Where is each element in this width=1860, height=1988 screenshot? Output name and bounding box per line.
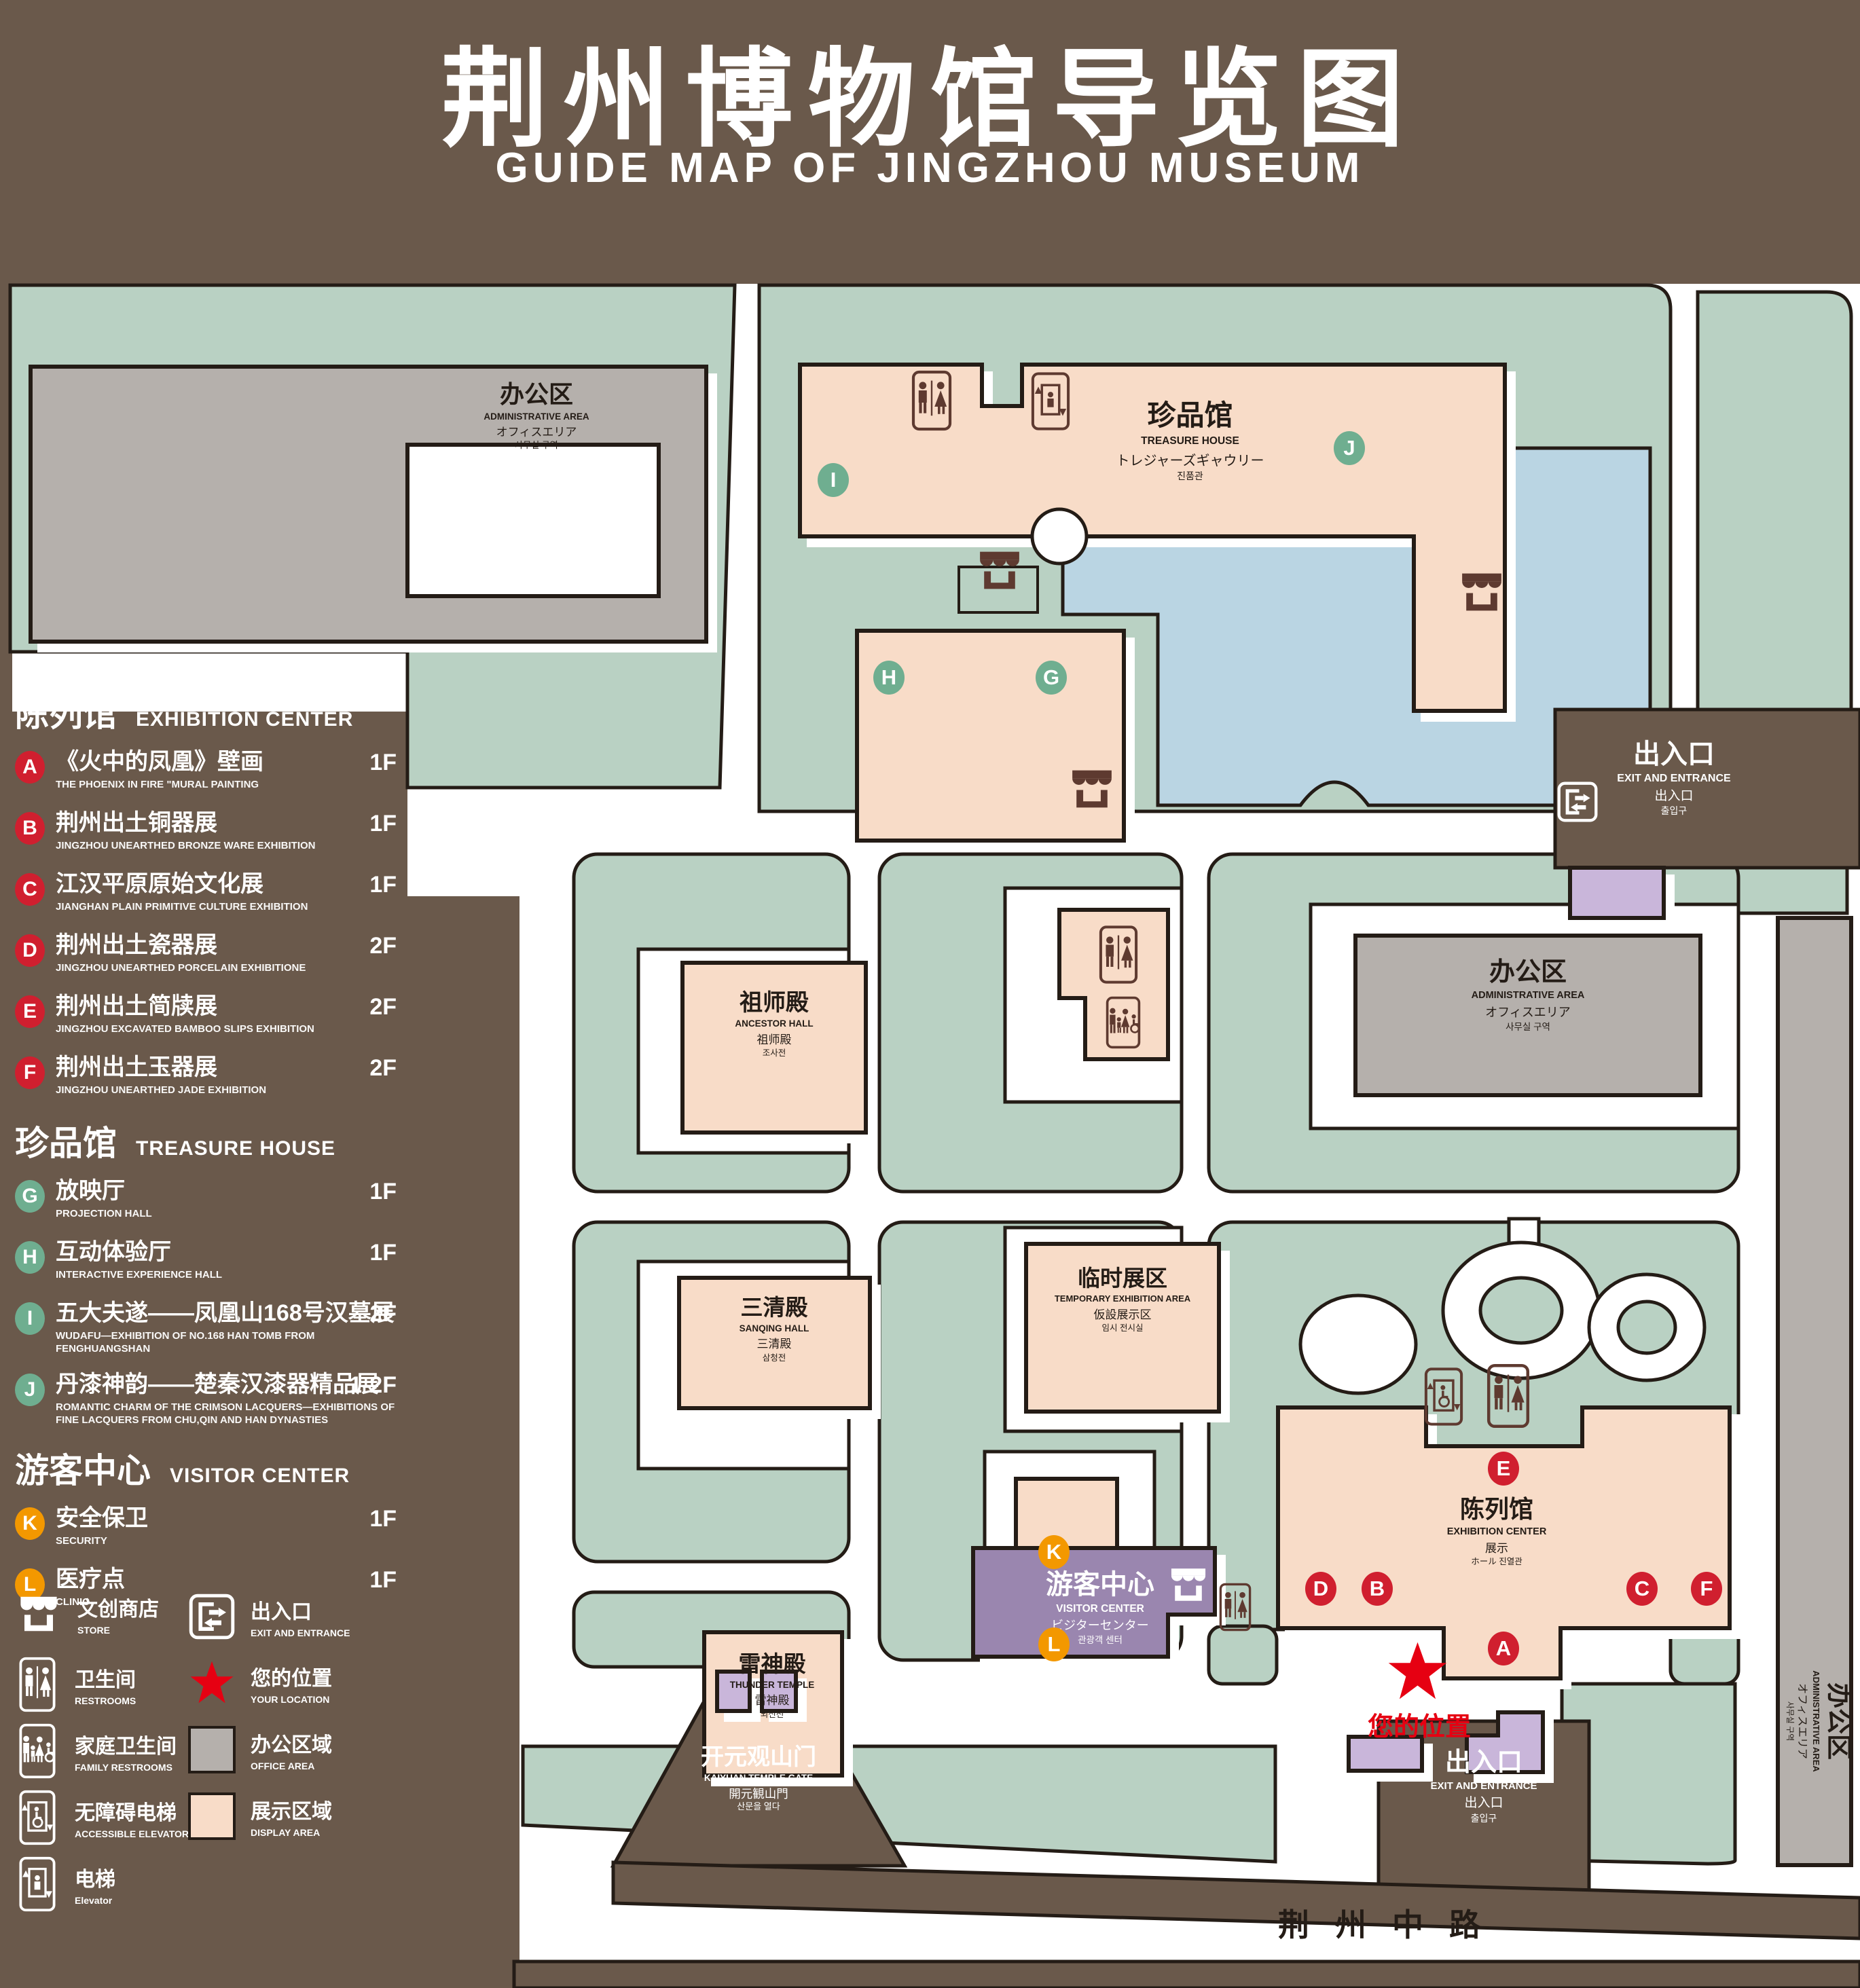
legend-item-floor: 1F [369, 872, 397, 898]
your-location-star-icon [1385, 1640, 1450, 1704]
legend-item-floor: 2F [369, 1055, 397, 1082]
legend-item-subtitle: SECURITY [56, 1535, 409, 1548]
legend-symbol-label: 展示区域DISPLAY AREA [251, 1794, 332, 1838]
section-title-en: TREASURE HOUSE [136, 1137, 335, 1160]
legend-marker: J [15, 1374, 45, 1406]
legend-item: H 互动体验厅 INTERACTIVE EXPERIENCE HALL 1F [15, 1240, 450, 1285]
elevator-icon [15, 1856, 60, 1912]
section-title-en: EXHIBITION CENTER [136, 708, 353, 731]
legend-item-subtitle: PROJECTION HALL [56, 1208, 409, 1221]
label-road: 荆州中路 [1188, 1905, 1596, 1946]
legend-marker: I [15, 1302, 45, 1335]
legend-item-floor: 1-2F [349, 1372, 397, 1399]
map-marker-L: L [1038, 1627, 1070, 1661]
restroom-icon [1487, 1362, 1530, 1430]
legend-symbol-row: 办公区域OFFICE AREA [188, 1726, 332, 1773]
legend-item: G 放映厅 PROJECTION HALL 1F [15, 1179, 450, 1223]
wc-icon [15, 1657, 60, 1712]
label-ancestor-hall: 祖师殿 ANCESTOR HALL 祖师殿 조사전 [672, 988, 876, 1059]
legend-item-floor: 2F [369, 933, 397, 959]
map-marker-G: G [1036, 661, 1067, 695]
map-marker-D: D [1305, 1572, 1336, 1606]
legend-marker: G [15, 1180, 45, 1213]
exit-icon [188, 1593, 236, 1640]
legend-section-heading: 游客中心VISITOR CENTER [15, 1443, 450, 1492]
legend-item-floor: 1F [369, 1179, 397, 1205]
legend-symbol-row: 出入口EXIT AND ENTRANCE [188, 1593, 350, 1640]
legend-panel: 陈列馆EXHIBITION CENTER A 《火中的凤凰》壁画 THE PHO… [15, 671, 450, 1628]
legend-symbol-label: 您的位置YOUR LOCATION [251, 1661, 332, 1705]
store-icon [15, 1590, 62, 1638]
map-marker-H: H [873, 661, 905, 695]
legend-item-subtitle: ROMANTIC CHARM OF THE CRIMSON LACQUERS—E… [56, 1401, 409, 1427]
label-kaiyuan-gate: 开元观山门 KAIYUAN TEMPLE GATE 開元観山門 산문을 열다 [657, 1742, 860, 1813]
map-marker-E: E [1488, 1452, 1519, 1486]
display-area-swatch [188, 1792, 236, 1840]
treasure-arc-court [1032, 509, 1087, 564]
legend-section-heading: 陈列馆EXHIBITION CENTER [15, 687, 450, 736]
legend-marker: D [15, 934, 45, 967]
guide-map-poster: 荆州博物馆导览图 GUIDE MAP OF JINGZHOU MUSEUM [0, 0, 1860, 1988]
legend-item-floor: 1F [369, 750, 397, 776]
label-visitor-center: 游客中心 VISITOR CENTER ビジターセンター 관광객 센터 [985, 1567, 1216, 1646]
map-marker-K: K [1038, 1535, 1070, 1569]
legend-item-subtitle: JINGZHOU UNEARTHED PORCELAIN EXHIBITIONE [56, 962, 409, 975]
restroom-icon [1219, 1582, 1252, 1632]
legend-symbol-label: 办公区域OFFICE AREA [251, 1728, 332, 1771]
label-your-location: 您的位置 [1331, 1711, 1508, 1744]
legend-item: B 荆州出土铜器展 JINGZHOU UNEARTHED BRONZE WARE… [15, 811, 450, 855]
label-exit-bottom: 出入口 EXIT AND ENTRANCE 出入口 출입구 [1382, 1746, 1586, 1824]
legend-symbol-label: 电梯Elevator [75, 1862, 115, 1906]
legend-item: K 安全保卫 SECURITY 1F [15, 1506, 450, 1551]
green-zone-topright [1698, 292, 1851, 710]
legend-symbol-label: 出入口EXIT AND ENTRANCE [251, 1595, 350, 1638]
legend-symbol-label: 卫生间RESTROOMS [75, 1663, 136, 1706]
legend-symbol-row: 家庭卫生间FAMILY RESTROOMS [15, 1723, 177, 1779]
legend-marker: H [15, 1241, 45, 1274]
label-temporary-exhibition: 临时展区 TEMPORARY EXHIBITION AREA 仮設展示区 임시 … [1015, 1264, 1230, 1333]
label-exit-top: 出入口 EXIT AND ENTRANCE 出入口 출입구 [1582, 737, 1766, 817]
legend-item-subtitle: WUDAFU—EXHIBITION OF NO.168 HAN TOMB FRO… [56, 1330, 409, 1356]
map-marker-J: J [1334, 431, 1365, 465]
map-marker-C: C [1626, 1572, 1658, 1606]
store-icon [1456, 566, 1508, 618]
legend-item-floor: 1F [369, 1240, 397, 1266]
elevator-icon [1031, 371, 1070, 432]
legend-symbol-row: 电梯Elevator [15, 1856, 115, 1912]
courtyard-admin-left [406, 443, 661, 599]
legend-item-subtitle: JINGZHOU UNEARTHED BRONZE WARE EXHIBITIO… [56, 840, 409, 853]
legend-symbol-label: 无障碍电梯ACCESSIBLE ELEVATOR [75, 1796, 189, 1839]
green-notch-left [1209, 1626, 1277, 1684]
legend-marker: E [15, 995, 45, 1028]
restroom-icon [1099, 925, 1138, 984]
legend-symbol-label: 文创商店STORE [77, 1592, 159, 1636]
map-marker-A: A [1488, 1632, 1519, 1665]
garden-island-right [1618, 1302, 1675, 1353]
legend-item-floor: 1F [369, 811, 397, 837]
legend-symbol-row: 卫生间RESTROOMS [15, 1657, 136, 1712]
legend-item: A 《火中的凤凰》壁画 THE PHOENIX IN FIRE "MURAL P… [15, 750, 450, 794]
legend-section-heading: 珍品馆TREASURE HOUSE [15, 1116, 450, 1165]
legend-item-subtitle: JIANGHAN PLAIN PRIMITIVE CULTURE EXHIBIT… [56, 901, 409, 914]
section-title-en: VISITOR CENTER [170, 1465, 350, 1488]
legend-symbol-row: 您的位置YOUR LOCATION [188, 1659, 332, 1707]
accessible-elevator-icon [15, 1790, 60, 1845]
accessible-elevator-icon [1424, 1365, 1463, 1429]
family-restroom-icon [1106, 995, 1141, 1050]
legend-symbol-label: 家庭卫生间FAMILY RESTROOMS [75, 1729, 177, 1773]
legend-item: C 江汉平原原始文化展 JIANGHAN PLAIN PRIMITIVE CUL… [15, 872, 450, 917]
legend-item-floor: 1F [369, 1567, 397, 1594]
legend-symbol-row: 文创商店STORE [15, 1590, 159, 1638]
section-title-cn: 陈列馆 [15, 687, 117, 736]
label-treasure-house: 珍品馆 TREASURE HOUSE トレジャーズギャウリー 진품관 [1066, 397, 1314, 482]
legend-marker: A [15, 751, 45, 784]
label-sanqing-hall: 三清殿 SANQING HALL 三清殿 삼청전 [672, 1293, 876, 1363]
legend-marker: F [15, 1056, 45, 1089]
legend-item-floor: 1F [369, 1506, 397, 1532]
garden-pond-left [1300, 1295, 1416, 1393]
road-strip-bottom [514, 1962, 1860, 1988]
legend-item-subtitle: THE PHOENIX IN FIRE "MURAL PAINTING [56, 779, 409, 792]
legend-item: I 五大夫遂——凤凰山168号汉墓展 WUDAFU—EXHIBITION OF … [15, 1301, 450, 1356]
restroom-icon [911, 369, 952, 432]
section-title-cn: 游客中心 [15, 1443, 151, 1492]
label-admin-strip: 办公区 ADMINISTRATIVE AREA オフィスエリア 사무실 구역 [1766, 1565, 1854, 1877]
family-icon [15, 1723, 60, 1779]
legend-marker: B [15, 812, 45, 845]
map-marker-B: B [1362, 1572, 1393, 1606]
label-exhibition-center: 陈列馆 EXHIBITION CENTER 展示 ホール 진열관 [1395, 1494, 1599, 1567]
label-thunder-temple: 雷神殿 THUNDER TEMPLE 雷神殿 뇌신전 [670, 1650, 874, 1720]
garden-island-center [1480, 1278, 1562, 1343]
legend-item: D 荆州出土瓷器展 JINGZHOU UNEARTHED PORCELAIN E… [15, 933, 450, 978]
legend-item-floor: 2F [369, 994, 397, 1020]
store-icon [1066, 763, 1118, 815]
legend-item-subtitle: JINGZHOU EXCAVATED BAMBOO SLIPS EXHIBITI… [56, 1023, 409, 1036]
legend-item: E 荆州出土简牍展 JINGZHOU EXCAVATED BAMBOO SLIP… [15, 994, 450, 1039]
legend-item-subtitle: INTERACTIVE EXPERIENCE HALL [56, 1269, 409, 1282]
location-star-icon [188, 1659, 236, 1707]
section-title-cn: 珍品馆 [15, 1116, 117, 1165]
legend-marker: C [15, 873, 45, 906]
label-admin-right: 办公区 ADMINISTRATIVE AREA オフィスエリア 사무실 구역 [1412, 956, 1643, 1033]
legend-symbol-row: 无障碍电梯ACCESSIBLE ELEVATOR [15, 1790, 189, 1845]
legend-marker: K [15, 1507, 45, 1540]
store-icon [974, 545, 1025, 596]
legend-item-subtitle: JINGZHOU UNEARTHED JADE EXHIBITION [56, 1084, 409, 1097]
green-notch-right [1671, 1626, 1738, 1684]
legend-item-floor: 2F [369, 1301, 397, 1327]
legend-item: J 丹漆神韵——楚秦汉漆器精品展 ROMANTIC CHARM OF THE C… [15, 1372, 450, 1427]
map-marker-I: I [818, 463, 849, 497]
office-area-swatch [188, 1726, 236, 1773]
map-marker-F: F [1691, 1572, 1722, 1606]
label-admin-left: 办公区 ADMINISTRATIVE AREA オフィスエリア 사무실 구역 [435, 379, 638, 452]
building-purple-exit-top [1570, 868, 1664, 918]
legend-item: F 荆州出土玉器展 JINGZHOU UNEARTHED JADE EXHIBI… [15, 1055, 450, 1100]
legend-symbol-row: 展示区域DISPLAY AREA [188, 1792, 332, 1840]
